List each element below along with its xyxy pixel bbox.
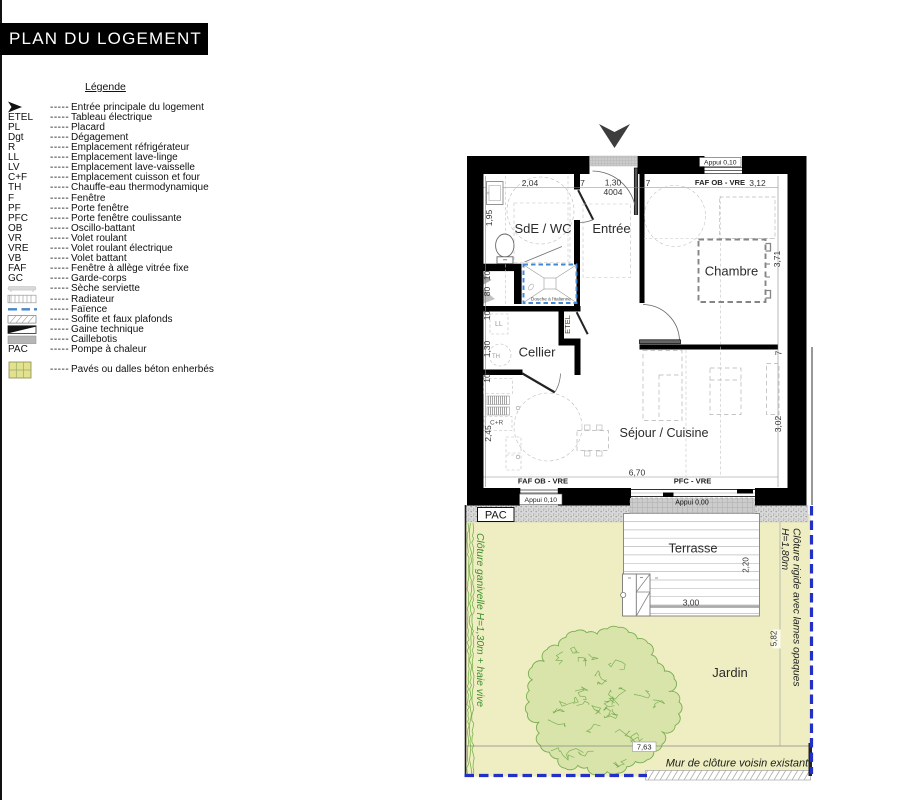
svg-text:6,70: 6,70 [629,468,646,478]
svg-text:Appui 0,10: Appui 0,10 [525,497,558,504]
svg-text:7: 7 [580,178,585,188]
svg-text:2,20: 2,20 [742,557,751,573]
svg-text:3,02: 3,02 [773,415,783,432]
svg-text:Appui 0,10: Appui 0,10 [704,160,737,167]
svg-text:4004: 4004 [604,187,623,197]
svg-text:2,04: 2,04 [522,178,539,188]
svg-text:Appui 0,00: Appui 0,00 [675,499,709,506]
svg-text:7: 7 [774,350,784,355]
svg-text:1,95: 1,95 [484,209,494,226]
svg-text:FAF OB - VRE: FAF OB - VRE [695,178,745,187]
svg-text:Chambre: Chambre [705,264,758,279]
svg-text:7,63: 7,63 [637,742,652,751]
svg-text:SdE / WC: SdE / WC [514,221,571,236]
svg-text:Entrée: Entrée [592,221,630,236]
svg-text:Mur de clôture voisin existant: Mur de clôture voisin existant [666,758,809,770]
svg-text:Cellier: Cellier [519,345,557,360]
svg-text:PFC - VRE: PFC - VRE [674,476,712,485]
svg-text:Clôture rigide avec lames opaq: Clôture rigide avec lames opaques [791,528,802,687]
svg-text:TH: TH [492,354,500,360]
svg-text:LL: LL [495,321,503,328]
svg-text:7: 7 [646,178,651,188]
svg-text:Douche à l'italienne: Douche à l'italienne [531,297,571,302]
svg-text:Clôture ganivelle H=1,30m + ha: Clôture ganivelle H=1,30m + haie vive [474,533,485,707]
svg-text:3,00: 3,00 [683,598,700,608]
svg-text:3,12: 3,12 [749,178,766,188]
svg-text:10: 10 [482,311,492,321]
svg-text:Terrasse: Terrasse [668,541,717,556]
svg-text:10: 10 [482,373,492,383]
svg-text:FAF OB - VRE: FAF OB - VRE [518,476,568,485]
svg-text:1,30: 1,30 [482,340,492,357]
svg-text:ETEL: ETEL [563,315,572,334]
svg-text:Jardin: Jardin [712,665,747,680]
svg-text:5,82: 5,82 [770,630,779,646]
svg-text:PAC: PAC [485,510,507,522]
svg-text:2,45: 2,45 [483,425,493,442]
svg-text:3,71: 3,71 [772,250,782,267]
svg-text:10: 10 [482,271,492,281]
svg-text:Séjour / Cuisine: Séjour / Cuisine [620,426,709,440]
svg-text:80: 80 [482,287,492,297]
svg-text:H=1,80m: H=1,80m [779,528,790,570]
